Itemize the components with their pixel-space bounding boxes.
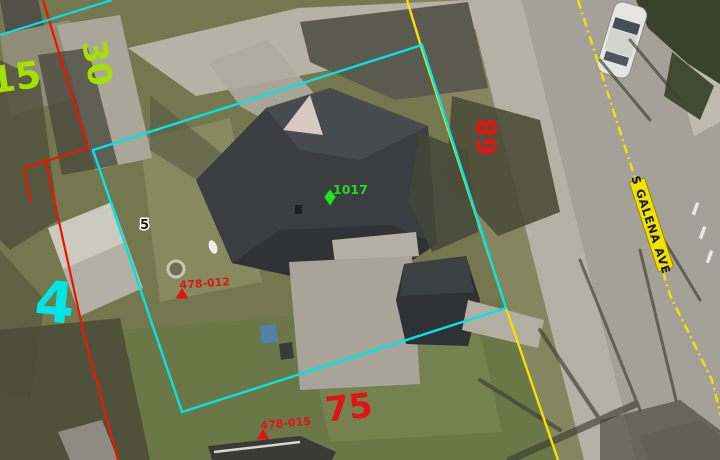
lot-number-75: 75 <box>323 386 374 431</box>
address-point-label: 1017 <box>333 182 368 197</box>
blue-bin <box>260 324 278 344</box>
chimney <box>295 205 302 214</box>
lot-number-15: 15 <box>0 53 44 103</box>
lot-number-4: 4 <box>32 268 77 337</box>
map-viewport[interactable]: 15 30 4 68 75 1017 5 478-012 478-015 S G… <box>0 0 720 460</box>
lot-number-68: 68 <box>472 118 503 156</box>
patio <box>289 256 420 390</box>
point-label-5: 5 <box>140 218 149 233</box>
dark-bin <box>279 342 294 360</box>
fire-pit-ring <box>168 261 184 277</box>
lot-number-30: 30 <box>74 37 120 89</box>
